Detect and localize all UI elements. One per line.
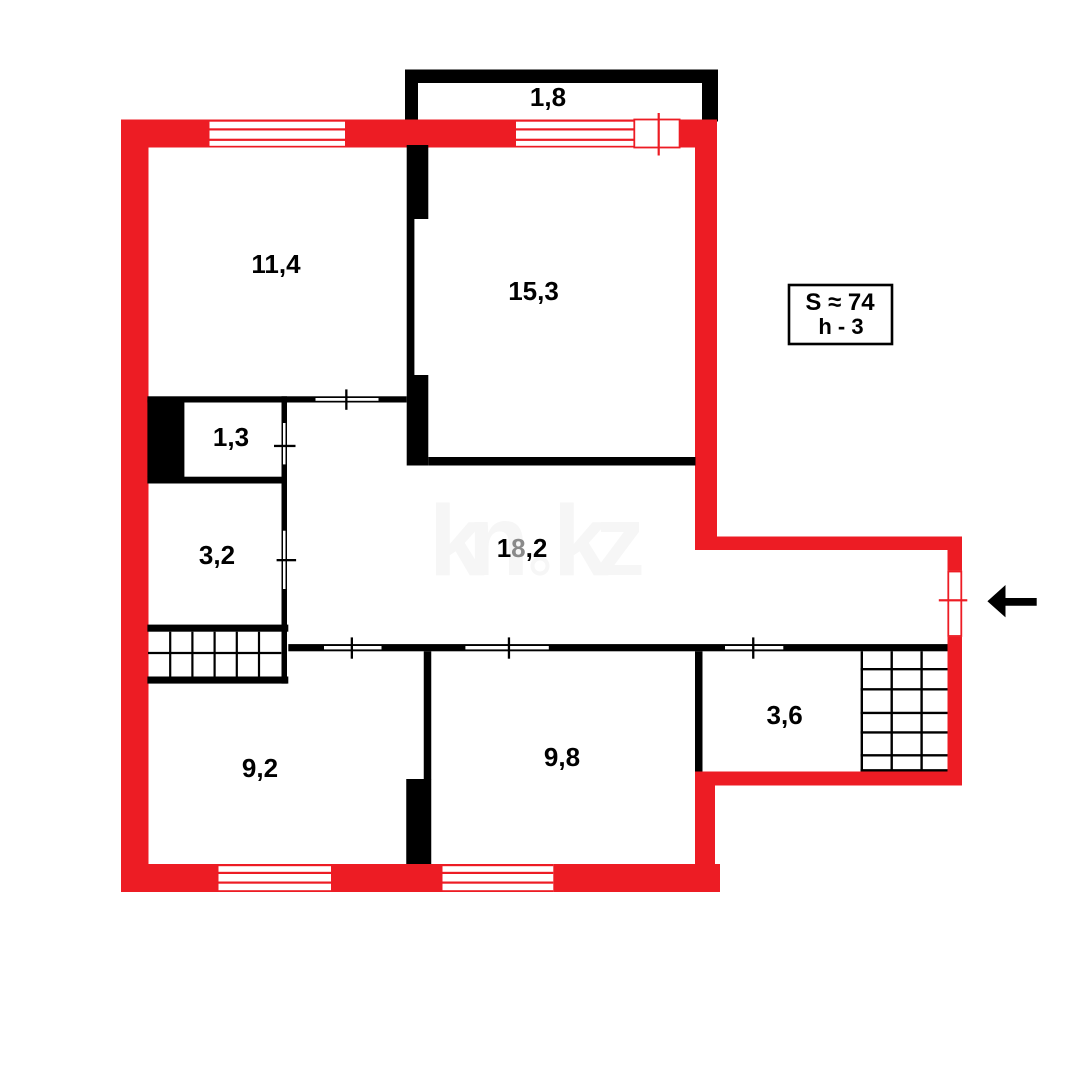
svg-text:S ≈ 74: S ≈ 74 bbox=[805, 289, 875, 316]
svg-text:3,6: 3,6 bbox=[767, 700, 803, 730]
svg-text:9,2: 9,2 bbox=[242, 753, 278, 783]
svg-text:18,2: 18,2 bbox=[497, 533, 548, 563]
svg-text:11,4: 11,4 bbox=[251, 249, 301, 279]
svg-text:1,8: 1,8 bbox=[530, 82, 566, 112]
svg-text:15,3: 15,3 bbox=[508, 276, 559, 306]
svg-text:3,2: 3,2 bbox=[199, 540, 235, 570]
svg-text:9,8: 9,8 bbox=[544, 742, 580, 772]
svg-text:1,3: 1,3 bbox=[213, 422, 249, 452]
svg-text:kz: kz bbox=[553, 485, 645, 597]
svg-text:h - 3: h - 3 bbox=[818, 314, 863, 339]
